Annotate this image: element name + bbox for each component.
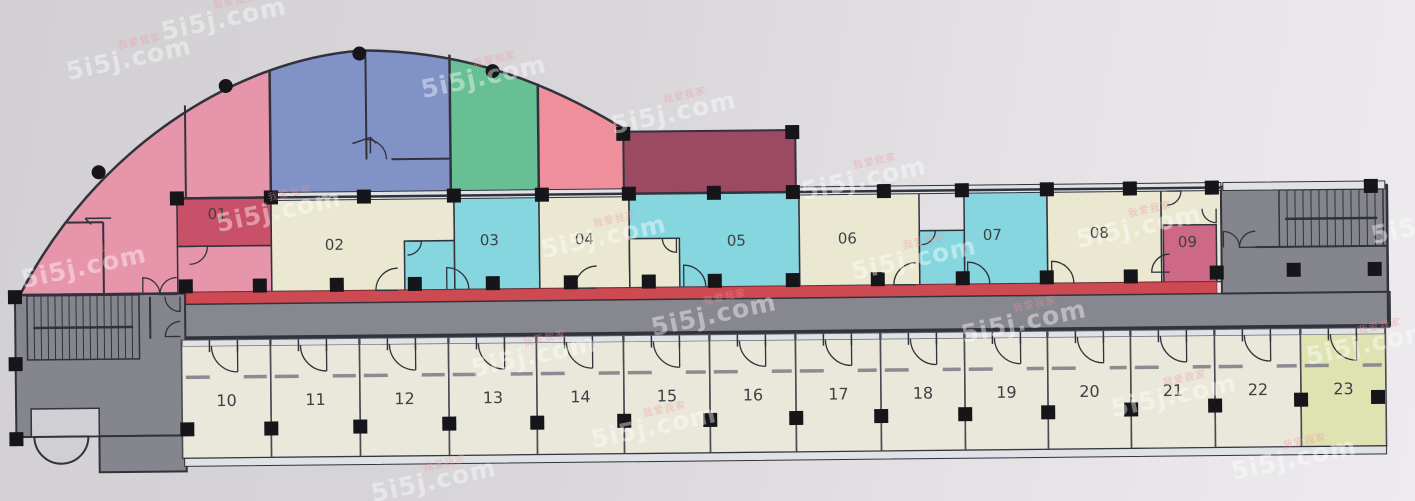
room-upper-07	[964, 189, 1048, 284]
structural-column	[9, 432, 23, 446]
maroon-annex	[623, 130, 796, 194]
curved-entry-step	[34, 436, 88, 464]
structural-column	[1294, 393, 1308, 407]
structural-column	[179, 279, 193, 293]
structural-column	[877, 184, 891, 198]
structural-column	[1041, 405, 1055, 419]
shopfront-glazing	[1048, 331, 1129, 338]
structural-column	[786, 273, 800, 287]
structural-column	[1371, 390, 1385, 404]
structural-column	[1208, 399, 1222, 413]
structural-column	[170, 191, 184, 205]
room-label-15: 15	[657, 386, 678, 405]
shopfront-glazing	[1301, 328, 1384, 335]
structural-column	[958, 407, 972, 421]
room-label-03: 03	[480, 231, 499, 249]
structural-column	[874, 409, 888, 423]
structural-column	[1287, 263, 1301, 277]
wall-line	[1255, 246, 1387, 247]
shopfront-glazing	[182, 340, 269, 347]
structural-column	[708, 274, 722, 288]
room-label-11: 11	[305, 390, 326, 409]
structural-column	[447, 188, 461, 202]
wall-line	[103, 222, 104, 294]
structural-column	[357, 189, 371, 203]
structural-column	[707, 186, 721, 200]
structural-column	[535, 188, 549, 202]
room-label-13: 13	[483, 388, 504, 407]
structural-column	[264, 190, 278, 204]
room-label-14: 14	[570, 387, 591, 406]
room-label-04: 04	[575, 230, 594, 248]
room-label-20: 20	[1079, 382, 1100, 401]
room-label-19: 19	[996, 383, 1017, 402]
structural-column	[1040, 270, 1054, 284]
structural-column	[1210, 266, 1224, 280]
structural-column	[9, 357, 23, 371]
room-label-08: 08	[1090, 224, 1109, 242]
left-block-lower	[99, 435, 186, 472]
wall-line	[270, 70, 271, 197]
entry-alcove	[31, 408, 99, 437]
room-upper-06	[799, 191, 920, 286]
structural-column	[1040, 182, 1054, 196]
structural-column	[353, 419, 367, 433]
structural-column	[1123, 181, 1137, 195]
room-label-18: 18	[913, 384, 934, 403]
window-band	[1223, 181, 1385, 191]
structural-column	[8, 290, 22, 304]
structural-column	[180, 422, 194, 436]
room-label-01: 01	[207, 205, 226, 223]
wall-line	[1387, 185, 1388, 326]
wall-line	[185, 105, 186, 198]
structural-column	[955, 183, 969, 197]
shopfront-glazing	[881, 332, 963, 339]
room-label-21: 21	[1163, 381, 1184, 400]
structural-column	[703, 413, 717, 427]
structural-column	[442, 417, 456, 431]
structural-column	[1364, 179, 1378, 193]
structural-column	[642, 274, 656, 288]
structural-column	[486, 276, 500, 290]
shopfront-glazing	[537, 336, 622, 343]
shopfront-glazing	[710, 334, 794, 341]
structural-column	[264, 421, 278, 435]
structural-column	[622, 187, 636, 201]
shopfront-glazing	[796, 333, 879, 340]
room-label-06: 06	[838, 229, 857, 247]
structural-column	[408, 277, 422, 291]
structural-column	[564, 275, 578, 289]
shopfront-glazing	[624, 335, 708, 342]
structural-column	[785, 125, 799, 139]
structural-column	[1368, 262, 1382, 276]
room-label-23: 23	[1333, 379, 1354, 398]
right-stair-vestibule	[1221, 185, 1388, 294]
stair-handrail	[1285, 218, 1377, 219]
structural-column	[1124, 269, 1138, 283]
shopfront-glazing	[449, 337, 535, 344]
room-label-07: 07	[983, 226, 1002, 244]
room-label-05: 05	[727, 232, 746, 250]
shopfront-glazing	[965, 331, 1046, 338]
structural-column	[616, 127, 630, 141]
structural-column	[956, 271, 970, 285]
room-label-10: 10	[216, 391, 237, 410]
structural-column	[530, 416, 544, 430]
room-label-22: 22	[1248, 380, 1269, 399]
wall-line	[538, 84, 539, 195]
structural-column	[1124, 402, 1138, 416]
room-label-16: 16	[743, 385, 764, 404]
floorplan-rotated-wrap: 1011121314151617181920212223010203040506…	[0, 0, 1415, 501]
structural-column	[871, 272, 885, 286]
shopfront-glazing	[1215, 329, 1299, 336]
shopfront-glazing	[271, 339, 358, 346]
structural-column	[330, 278, 344, 292]
wall-line	[449, 55, 450, 196]
shopfront-glazing	[360, 338, 447, 345]
floor-plan-svg: 1011121314151617181920212223010203040506…	[0, 0, 1415, 501]
structural-column	[253, 279, 267, 293]
structural-column	[1205, 181, 1219, 195]
room-label-17: 17	[828, 384, 849, 403]
room-label-02: 02	[325, 236, 344, 254]
shopfront-glazing	[1131, 330, 1213, 337]
stair-handrail	[33, 327, 133, 328]
room-label-09: 09	[1178, 233, 1197, 251]
structural-column	[789, 411, 803, 425]
structural-column	[617, 414, 631, 428]
floorplan-photo: 1011121314151617181920212223010203040506…	[0, 0, 1415, 501]
structural-column	[786, 185, 800, 199]
room-label-12: 12	[394, 389, 415, 408]
wall-line	[392, 159, 451, 160]
